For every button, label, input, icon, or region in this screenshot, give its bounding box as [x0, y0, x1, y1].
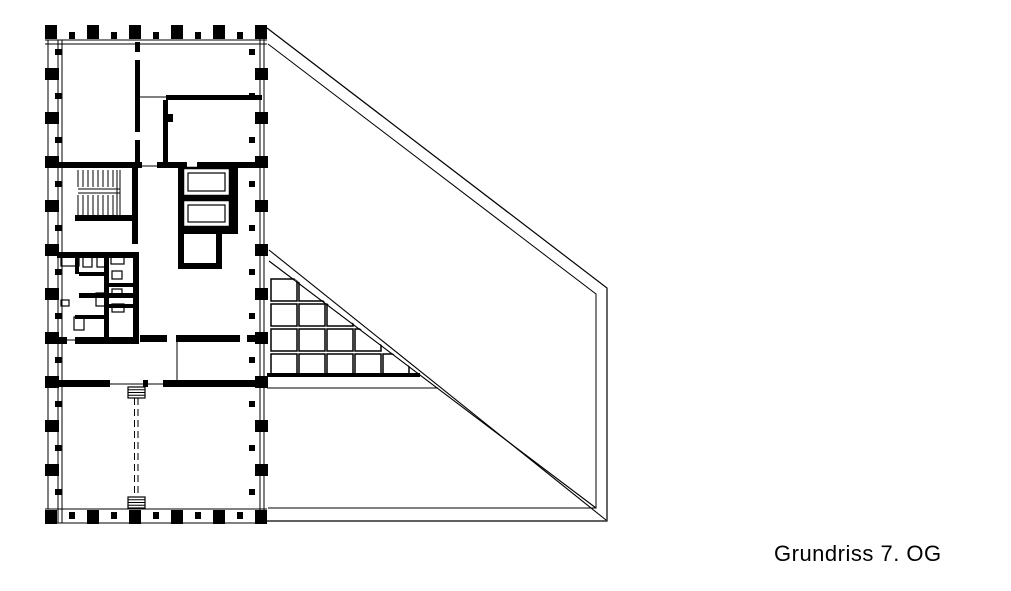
staircase — [78, 170, 120, 215]
terrace-mask — [269, 259, 940, 510]
drawing-sheet: Grundriss 7. OG — [0, 0, 1011, 591]
movable-partition — [128, 387, 145, 508]
plan-caption: Grundriss 7. OG — [774, 541, 942, 567]
floor-plan — [0, 0, 1011, 591]
